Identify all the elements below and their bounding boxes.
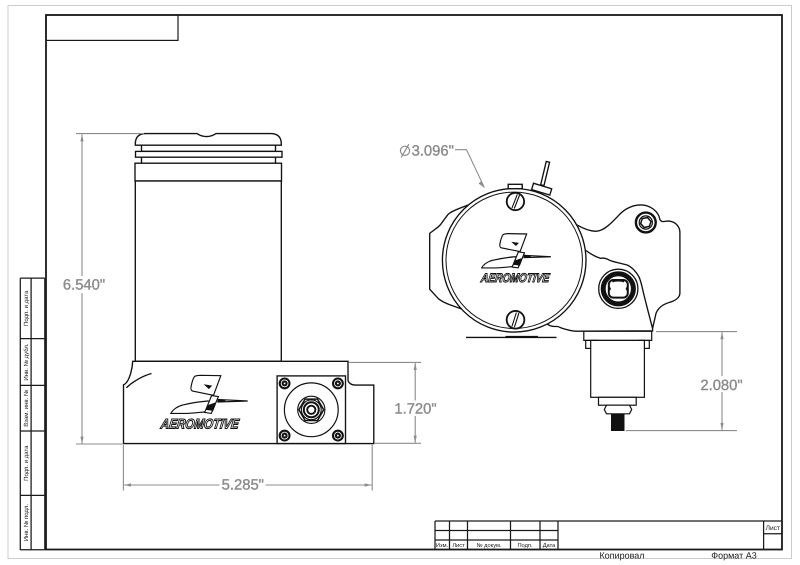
svg-text:Формат А3: Формат А3 xyxy=(711,551,756,561)
svg-text:2.080": 2.080" xyxy=(700,378,742,394)
svg-text:Изм.: Изм. xyxy=(436,543,449,549)
svg-text:Копировал: Копировал xyxy=(599,551,644,561)
svg-text:Дата: Дата xyxy=(543,543,556,549)
svg-text:1.720": 1.720" xyxy=(394,402,436,418)
svg-text:№ докум.: № докум. xyxy=(477,543,502,549)
svg-text:5.285": 5.285" xyxy=(222,478,264,494)
svg-text:Взам. инв. №: Взам. инв. № xyxy=(23,389,30,427)
svg-text:Подп.: Подп. xyxy=(517,543,533,549)
svg-text:Подп. и дата: Подп. и дата xyxy=(23,290,30,326)
svg-text:Инв. № подл.: Инв. № подл. xyxy=(23,504,30,542)
svg-text:Инв. № дубл.: Инв. № дубл. xyxy=(23,343,30,380)
svg-text:Лист: Лист xyxy=(766,525,780,532)
svg-text:6.540": 6.540" xyxy=(63,278,105,294)
svg-text:AEROMOTIVE: AEROMOTIVE xyxy=(479,271,551,285)
svg-text:Лист: Лист xyxy=(452,543,465,549)
svg-text:AEROMOTIVE: AEROMOTIVE xyxy=(159,416,241,431)
svg-text:3.096": 3.096" xyxy=(412,144,454,160)
svg-text:Подп. и дата: Подп. и дата xyxy=(23,445,30,481)
